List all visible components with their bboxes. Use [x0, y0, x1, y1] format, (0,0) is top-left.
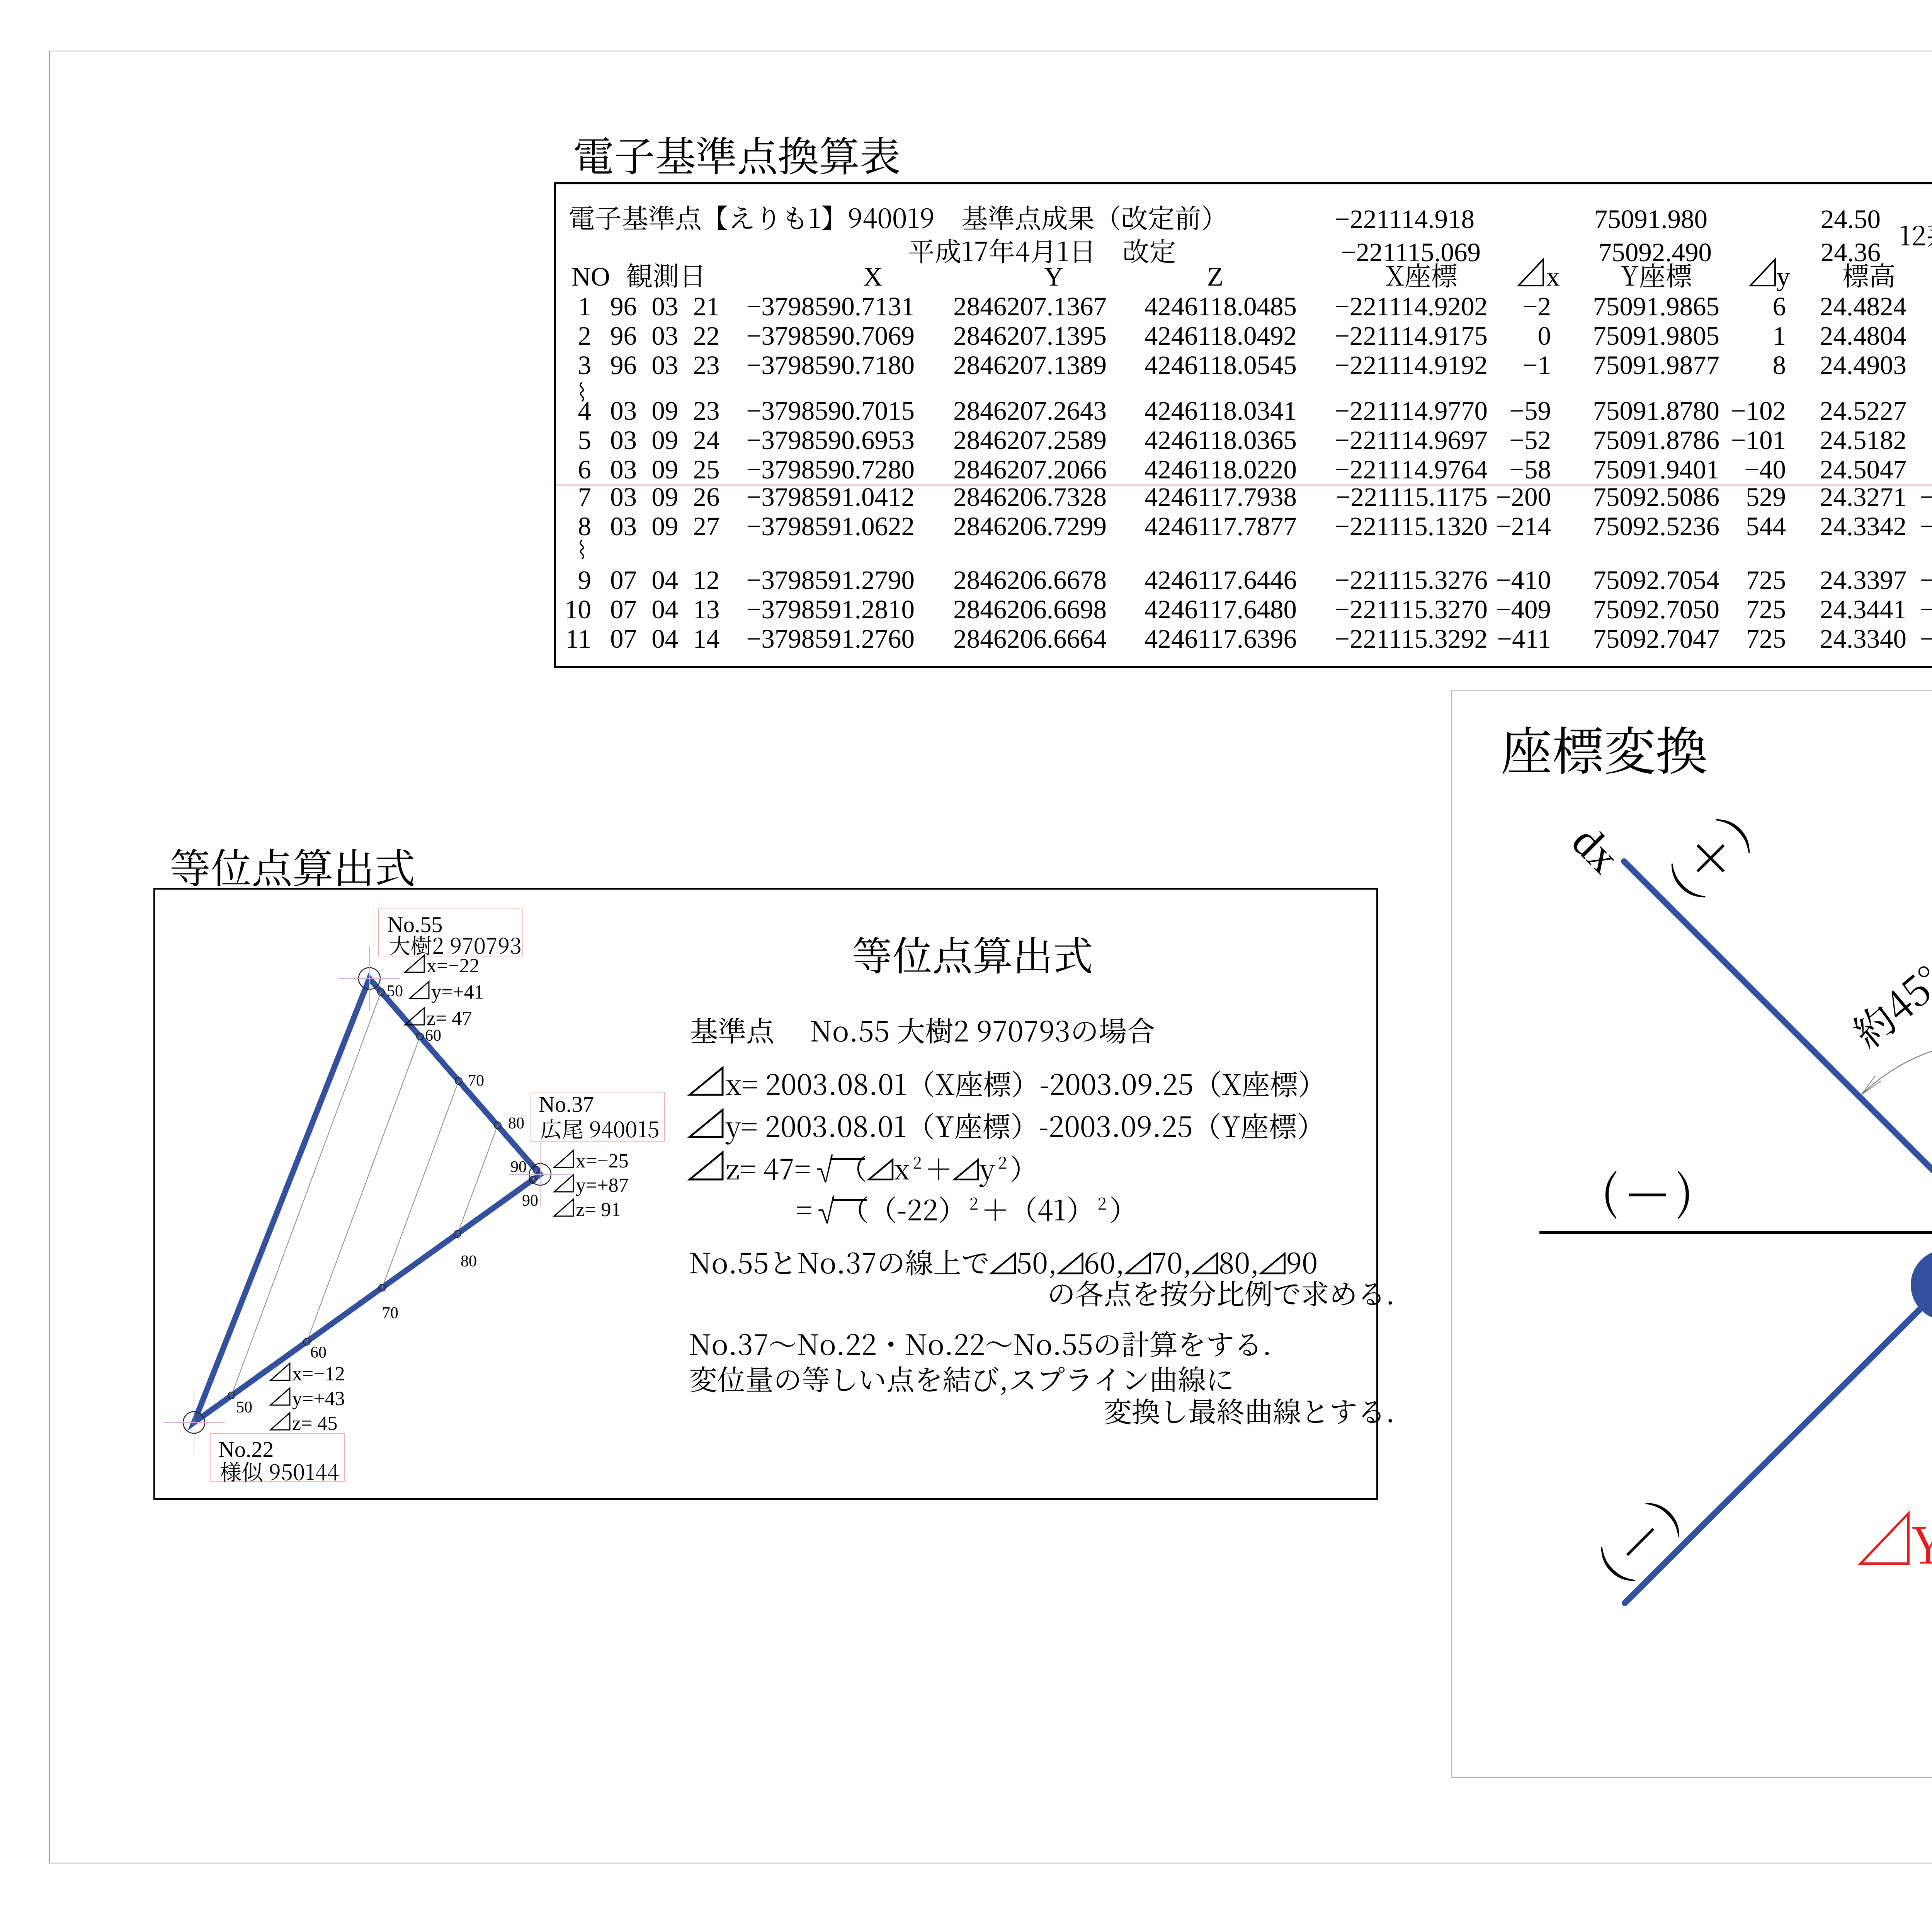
svg-text:24.5182: 24.5182 [1820, 425, 1906, 455]
svg-text:9: 9 [578, 565, 592, 595]
svg-text:5: 5 [578, 425, 592, 455]
svg-text:03 09 26: 03 09 26 [610, 482, 720, 512]
svg-text:24.3340: 24.3340 [1820, 624, 1906, 653]
svg-text:−160: −160 [1920, 565, 1932, 595]
svg-text:−221115.1175: −221115.1175 [1336, 482, 1488, 512]
svg-text:24.3441: 24.3441 [1820, 595, 1906, 624]
svg-text:−221115.1320: −221115.1320 [1335, 512, 1488, 541]
svg-text:75091.8780: 75091.8780 [1593, 396, 1719, 425]
svg-text:03 09 27: 03 09 27 [610, 512, 720, 541]
svg-text:y: y [1777, 262, 1790, 291]
svg-text:07 04 13: 07 04 13 [610, 595, 720, 624]
svg-text:8: 8 [1773, 351, 1786, 380]
svg-text:X: X [863, 262, 883, 291]
svg-text:4246117.6396: 4246117.6396 [1145, 624, 1297, 653]
svg-text:−410: −410 [1496, 565, 1551, 595]
svg-text:4246118.0492: 4246118.0492 [1145, 321, 1297, 351]
svg-text:x: x [1546, 262, 1560, 291]
svg-text:03 09 24: 03 09 24 [610, 425, 720, 455]
svg-text:4246117.7877: 4246117.7877 [1145, 512, 1297, 541]
svg-text:−3798590.7131: −3798590.7131 [746, 292, 915, 321]
svg-text:24.3342: 24.3342 [1820, 512, 1906, 541]
svg-text:24.3397: 24.3397 [1820, 565, 1906, 595]
svg-text:2846207.2589: 2846207.2589 [953, 425, 1107, 455]
svg-text:75092.7050: 75092.7050 [1593, 595, 1719, 624]
svg-text:NO: NO [571, 262, 610, 291]
svg-text:10: 10 [565, 595, 591, 624]
svg-text:3: 3 [578, 351, 592, 380]
svg-text:2846207.1395: 2846207.1395 [953, 321, 1107, 351]
svg-text:75091.9805: 75091.9805 [1593, 321, 1719, 351]
svg-text:6: 6 [1773, 292, 1786, 321]
svg-text:96 03 23: 96 03 23 [610, 351, 720, 380]
svg-text:03 09 25: 03 09 25 [610, 455, 720, 484]
svg-text:1: 1 [578, 292, 592, 321]
svg-text:725: 725 [1746, 595, 1786, 624]
svg-text:−221114.9192: −221114.9192 [1335, 351, 1488, 380]
svg-text:−3798590.7280: −3798590.7280 [746, 455, 915, 484]
svg-text:4: 4 [578, 396, 592, 425]
svg-text:−3798591.2810: −3798591.2810 [746, 595, 915, 624]
svg-text:75092.5236: 75092.5236 [1593, 512, 1719, 541]
svg-text:2846206.7328: 2846206.7328 [953, 482, 1107, 512]
svg-text:−214: −214 [1496, 512, 1551, 541]
svg-text:y=+43: y=+43 [292, 1388, 345, 1410]
svg-text:x=−12: x=−12 [292, 1363, 345, 1385]
svg-text:24.36: 24.36 [1821, 238, 1881, 267]
svg-text:75091.9877: 75091.9877 [1593, 351, 1719, 380]
svg-text:−200: −200 [1496, 482, 1551, 512]
svg-text:−101: −101 [1731, 425, 1786, 455]
svg-text:−3798590.7069: −3798590.7069 [746, 321, 915, 351]
svg-text:96 03 21: 96 03 21 [610, 292, 720, 321]
svg-text:−2: −2 [1523, 292, 1551, 321]
svg-text:−411: −411 [1497, 624, 1551, 653]
svg-text:−3798590.7015: −3798590.7015 [746, 396, 915, 425]
svg-text:−59: −59 [1509, 396, 1551, 425]
svg-text:y=+87: y=+87 [576, 1174, 629, 1196]
svg-text:07 04 14: 07 04 14 [610, 624, 720, 653]
svg-text:2846206.6664: 2846206.6664 [953, 624, 1107, 653]
svg-text:2846206.6698: 2846206.6698 [953, 595, 1107, 624]
svg-text:75092.490: 75092.490 [1599, 238, 1712, 267]
svg-text:50: 50 [387, 982, 403, 1000]
svg-text:2: 2 [578, 321, 592, 351]
svg-text:07 04 12: 07 04 12 [610, 565, 720, 595]
svg-text:4246117.6480: 4246117.6480 [1145, 595, 1297, 624]
svg-text:75091.980: 75091.980 [1594, 204, 1708, 234]
svg-text:24.5227: 24.5227 [1820, 396, 1906, 425]
svg-text:0: 0 [1538, 321, 1551, 351]
svg-text:−221114.9770: −221114.9770 [1335, 396, 1488, 425]
svg-text:50: 50 [236, 1399, 252, 1416]
svg-text:−166: −166 [1920, 624, 1932, 653]
svg-text:−1: −1 [1523, 351, 1551, 380]
svg-text:2846207.2066: 2846207.2066 [953, 455, 1107, 484]
svg-text:529: 529 [1746, 482, 1786, 512]
svg-text:75091.9401: 75091.9401 [1593, 455, 1719, 484]
svg-text:−221114.918: −221114.918 [1335, 204, 1475, 234]
svg-text:4246118.0365: 4246118.0365 [1145, 425, 1297, 455]
svg-text:24.5047: 24.5047 [1820, 455, 1906, 484]
svg-text:24.4804: 24.4804 [1820, 321, 1906, 351]
svg-text:24.50: 24.50 [1821, 204, 1881, 234]
svg-text:4246117.6446: 4246117.6446 [1145, 565, 1297, 595]
svg-text:24.4903: 24.4903 [1820, 351, 1906, 380]
svg-text:−173: −173 [1920, 482, 1932, 512]
svg-text:−409: −409 [1496, 595, 1551, 624]
svg-text:−221115.3270: −221115.3270 [1335, 595, 1488, 624]
svg-text:544: 544 [1746, 512, 1786, 541]
svg-text:−40: −40 [1744, 455, 1786, 484]
svg-text:−3798590.7180: −3798590.7180 [746, 351, 915, 380]
svg-text:No.37: No.37 [539, 1092, 594, 1117]
svg-text:70: 70 [468, 1072, 484, 1090]
svg-text:z= 45: z= 45 [292, 1412, 337, 1434]
svg-text:2846206.6678: 2846206.6678 [953, 565, 1107, 595]
svg-text:−221115.069: −221115.069 [1341, 238, 1481, 267]
svg-text:75092.7047: 75092.7047 [1593, 624, 1719, 653]
svg-text:725: 725 [1746, 624, 1786, 653]
svg-text:96 03 22: 96 03 22 [610, 321, 720, 351]
svg-text:−221115.3292: −221115.3292 [1335, 624, 1488, 653]
svg-text:03 09 23: 03 09 23 [610, 396, 720, 425]
svg-text:60: 60 [310, 1344, 327, 1361]
svg-text:4246118.0485: 4246118.0485 [1145, 292, 1297, 321]
svg-text:z= 91: z= 91 [576, 1199, 621, 1221]
svg-text:80: 80 [461, 1252, 477, 1270]
svg-text:−52: −52 [1509, 425, 1551, 455]
svg-text:Z: Z [1207, 262, 1223, 291]
svg-text:1: 1 [1773, 321, 1786, 351]
svg-text:2846207.1367: 2846207.1367 [953, 292, 1107, 321]
svg-text:24.4824: 24.4824 [1820, 292, 1906, 321]
svg-text:2846206.7299: 2846206.7299 [953, 512, 1107, 541]
svg-text:−221114.9764: −221114.9764 [1335, 455, 1488, 484]
svg-text:−221114.9697: −221114.9697 [1335, 425, 1488, 455]
svg-text:7: 7 [578, 482, 592, 512]
svg-text:dx: dx [1563, 817, 1629, 883]
svg-text:−221114.9202: −221114.9202 [1335, 292, 1488, 321]
svg-text:90: 90 [522, 1192, 538, 1210]
svg-text:−3798590.6953: −3798590.6953 [746, 425, 915, 455]
svg-text:2846207.1389: 2846207.1389 [953, 351, 1107, 380]
svg-text:−3798591.0622: −3798591.0622 [746, 512, 915, 541]
svg-text:4246118.0545: 4246118.0545 [1145, 351, 1297, 380]
svg-text:No.22: No.22 [218, 1437, 274, 1462]
svg-text:−102: −102 [1731, 396, 1786, 425]
svg-text:4246118.0341: 4246118.0341 [1145, 396, 1297, 425]
svg-text:70: 70 [382, 1304, 398, 1322]
svg-text:−58: −58 [1509, 455, 1551, 484]
svg-text:z= 47: z= 47 [427, 1007, 472, 1029]
svg-text:75091.9865: 75091.9865 [1593, 292, 1719, 321]
svg-text:24.3271: 24.3271 [1820, 482, 1906, 512]
svg-text:11: 11 [566, 624, 591, 653]
svg-text:−3798591.2760: −3798591.2760 [746, 624, 915, 653]
svg-text:75091.8786: 75091.8786 [1593, 425, 1719, 455]
svg-text:2846207.2643: 2846207.2643 [953, 396, 1107, 425]
svg-text:8: 8 [578, 512, 592, 541]
svg-text:x=−25: x=−25 [576, 1150, 629, 1172]
svg-text:−3798591.0412: −3798591.0412 [746, 482, 915, 512]
svg-text:90: 90 [510, 1158, 527, 1176]
svg-text:−221115.3276: −221115.3276 [1335, 565, 1488, 595]
svg-text:−166: −166 [1920, 512, 1932, 541]
svg-text:75092.5086: 75092.5086 [1593, 482, 1719, 512]
svg-text:4246117.7938: 4246117.7938 [1145, 482, 1297, 512]
svg-text:75092.7054: 75092.7054 [1593, 565, 1719, 595]
svg-text:y=+41: y=+41 [431, 981, 484, 1003]
svg-text:4246118.0220: 4246118.0220 [1145, 455, 1297, 484]
svg-text:−156: −156 [1920, 595, 1932, 624]
svg-text:−3798591.2790: −3798591.2790 [746, 565, 915, 595]
svg-text:725: 725 [1746, 565, 1786, 595]
svg-text:Y: Y [1044, 262, 1063, 291]
svg-text:No.55: No.55 [387, 912, 442, 937]
svg-text:6: 6 [578, 455, 592, 484]
svg-text:−221114.9175: −221114.9175 [1335, 321, 1488, 351]
svg-text:80: 80 [508, 1115, 524, 1132]
svg-text:x=−22: x=−22 [427, 955, 480, 977]
